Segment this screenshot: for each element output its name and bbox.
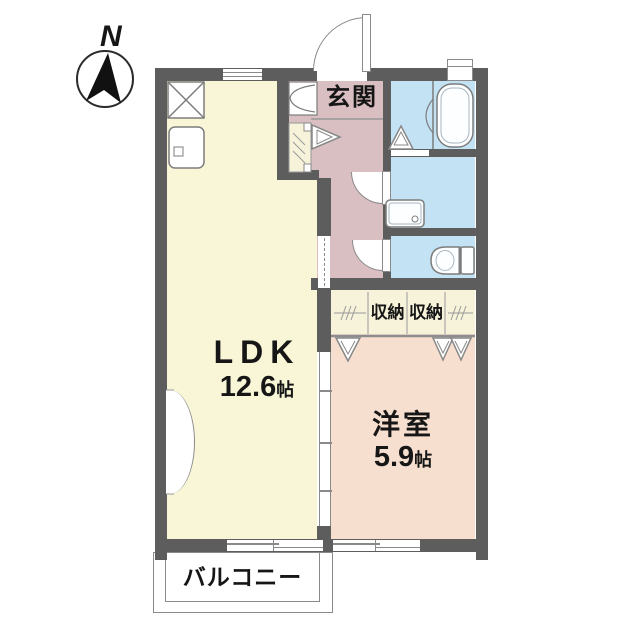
entrance-label: 玄関 [318,84,386,112]
balcony-label: バルコニー [183,564,303,590]
wall [476,68,488,560]
sliding-window-icon [333,540,420,551]
wall [311,278,476,290]
wall [383,228,476,236]
western-room-name: 洋室 [372,409,434,441]
ldk-label: LDK 12.6帖 [177,330,337,408]
floor-plan: N バルコニー [0,0,640,640]
sliding-window-icon [223,69,262,80]
washroom-door-leaf [382,171,391,205]
western-room-area: 5.9帖 [374,441,432,474]
room-bathroom [383,80,475,157]
north-label: N [100,20,122,54]
toilet-door-leaf [382,239,391,272]
entrance-door-icon [313,17,367,71]
ldk-name: LDK [214,334,301,371]
wall [277,81,289,178]
entrance-door-leaf [362,14,371,72]
western-room-label: 洋室 5.9帖 [331,396,475,488]
bath-door-opening [391,150,429,156]
wall [277,170,319,180]
wall [317,526,331,540]
ldk-area: 12.6帖 [220,371,294,404]
compass [76,50,134,108]
storage-right-label: 収納 [407,292,445,334]
storage-left-label: 収納 [368,292,407,334]
room-washroom [383,157,475,236]
hall-sliding-door-track [324,238,325,286]
wall [317,178,331,236]
balcony: バルコニー [153,552,333,613]
bath-window-icon [447,59,473,81]
balcony-inner-rail: バルコニー [165,552,320,602]
sliding-window-icon [227,540,323,551]
